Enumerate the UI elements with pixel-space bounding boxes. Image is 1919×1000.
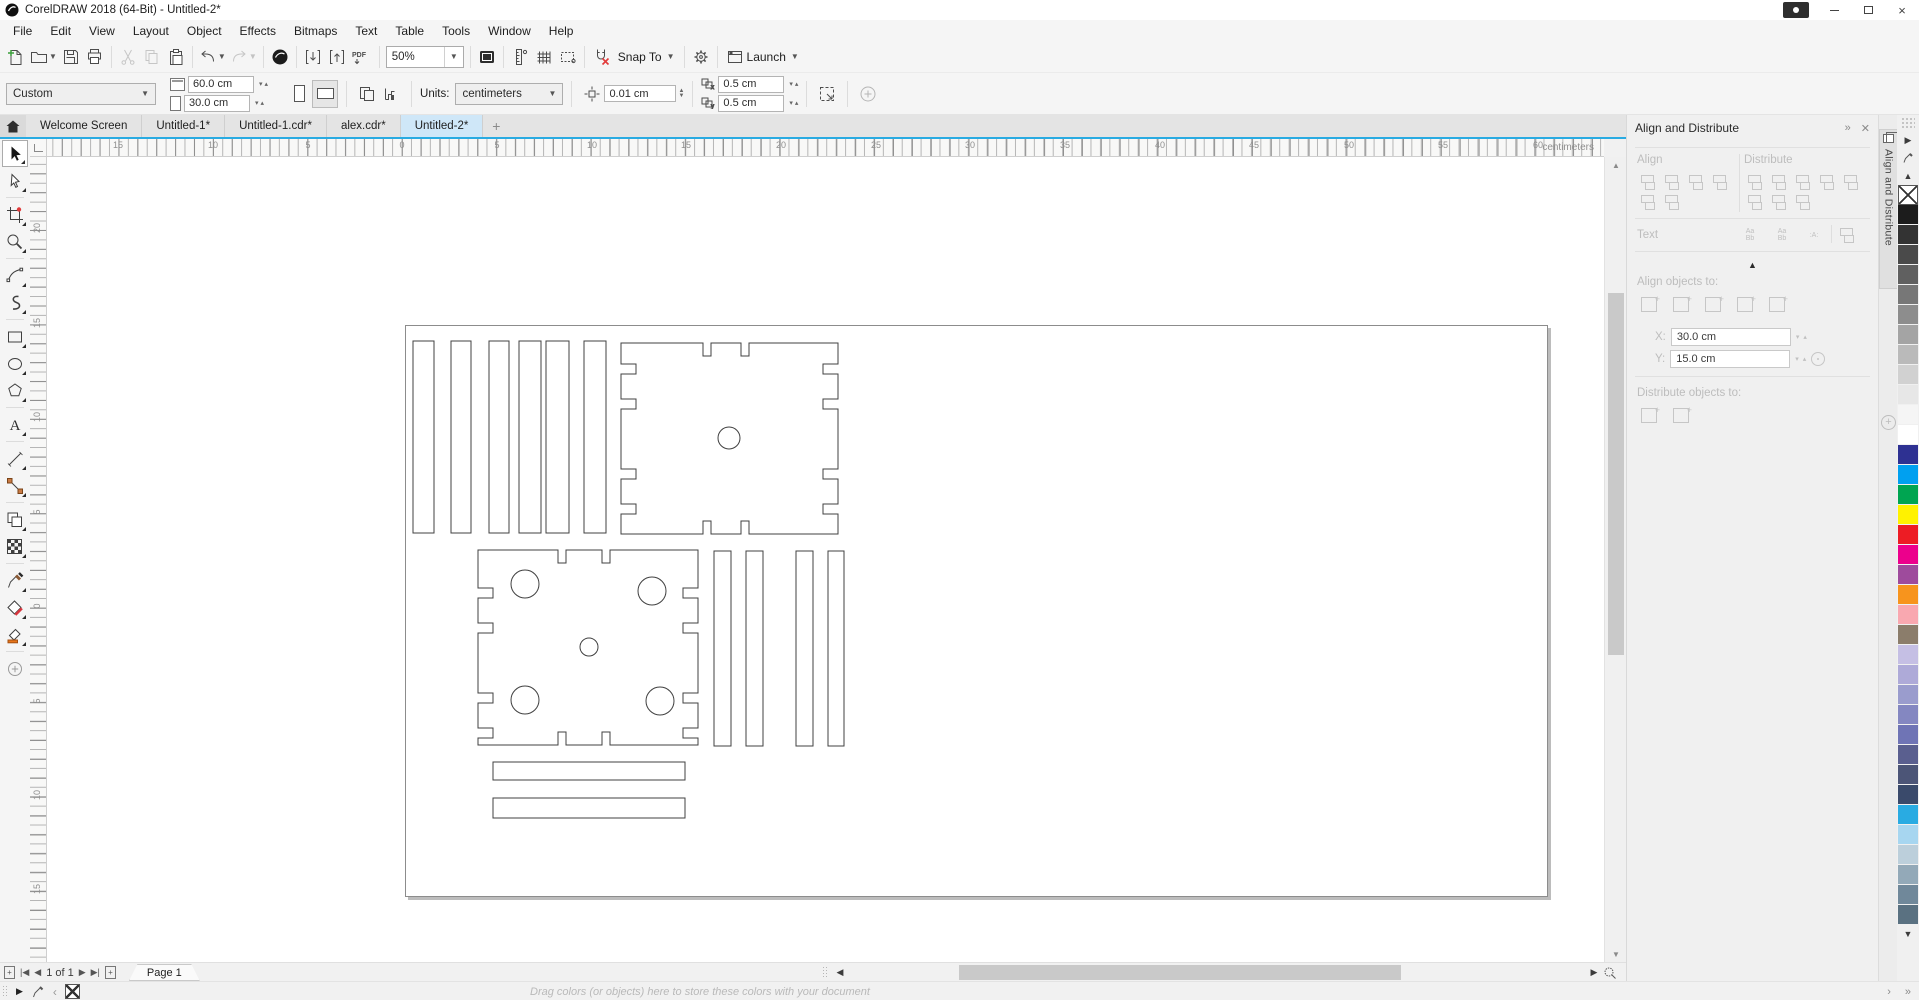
drop-shadow-tool[interactable]	[2, 506, 28, 533]
menu-file[interactable]: File	[4, 22, 41, 40]
property-bar: Custom▼ 60.0 cm ▾▴ 30.0 cm ▾▴ Units: cen…	[0, 73, 1919, 115]
distribute-section-label: Distribute	[1744, 154, 1868, 166]
scroll-up-arrow[interactable]: ▲	[1605, 157, 1627, 173]
align-section-label: Align	[1637, 154, 1735, 166]
menu-effects[interactable]: Effects	[231, 22, 285, 40]
zoom-to-fit-button[interactable]	[1602, 963, 1618, 982]
polygon-tool[interactable]	[2, 377, 28, 404]
launch-dropdown[interactable]: Launch▼	[722, 44, 804, 70]
horizontal-ruler[interactable]: centimeters 1510505101520253035404550556…	[47, 139, 1604, 157]
undo-button[interactable]: ▼	[197, 44, 228, 70]
new-document-button[interactable]	[4, 44, 28, 70]
page-tab-1[interactable]: Page 1	[129, 964, 200, 981]
document-tab-bar: Welcome ScreenUntitled-1*Untitled-1.cdr*…	[0, 115, 1626, 139]
scro​ll-right-arrow[interactable]: ▶	[1586, 963, 1602, 982]
text-section-label: Text	[1637, 229, 1737, 241]
align-outline-icon[interactable]	[1836, 225, 1860, 245]
ruler-number: 5	[32, 694, 42, 708]
color-swatch[interactable]	[1898, 805, 1918, 825]
color-palette: ▶ ▲ ▼	[1897, 115, 1919, 981]
landscape-button[interactable]	[312, 80, 338, 108]
mesh-fill-tool[interactable]	[2, 533, 28, 560]
docker-tab-strip: Align and Distribute +	[1878, 115, 1897, 981]
horizontal-scroll-thumb[interactable]	[959, 965, 1401, 980]
palette-grip[interactable]	[1901, 117, 1915, 129]
color-swatch[interactable]	[1898, 745, 1918, 765]
active-objects-icon[interactable]	[1637, 294, 1663, 316]
color-swatch[interactable]	[1898, 845, 1918, 865]
drawing-shape[interactable]	[796, 551, 813, 746]
ruler-number: 10	[587, 140, 597, 150]
drawing-shape[interactable]	[638, 577, 666, 605]
duplicate-x-field[interactable]: 0.5 cm	[718, 76, 784, 93]
page-width-field[interactable]: 60.0 cm	[188, 76, 254, 93]
ruler-number: 5	[494, 140, 499, 150]
color-swatch[interactable]	[1898, 285, 1918, 305]
menu-view[interactable]: View	[80, 22, 124, 40]
ruler-number: 60	[1533, 140, 1543, 150]
page-preset-combo[interactable]: Custom▼	[6, 83, 156, 105]
nudge-icon	[580, 81, 604, 107]
ruler-number: 10	[208, 140, 218, 150]
extent-of-selection-icon[interactable]	[1637, 405, 1663, 427]
treat-as-filled-button[interactable]	[815, 81, 839, 107]
distribute-buttons	[1744, 172, 1868, 212]
docker-tab-label: Align and Distribute	[1883, 149, 1895, 246]
ruler-origin-button[interactable]	[30, 139, 47, 157]
page-height-spinner[interactable]: ▾▴	[255, 99, 264, 107]
distribute-left-icon[interactable]	[1744, 172, 1768, 192]
align-text-baseline-icon[interactable]: Aa Bb	[1737, 228, 1763, 242]
zoom-tool[interactable]	[2, 228, 28, 255]
quick-customize-button[interactable]: +	[1881, 415, 1896, 430]
ruler-number: 5	[32, 505, 42, 519]
units-combo[interactable]: centimeters▼	[455, 83, 563, 105]
scrollbar-splitter[interactable]	[822, 966, 828, 979]
zoom-level-combo[interactable]: 50%▼	[386, 46, 464, 68]
x-spinner[interactable]: ▾▴	[1796, 333, 1807, 341]
duplicate-y-spinner[interactable]: ▾▴	[789, 99, 798, 107]
show-grid-button[interactable]	[532, 44, 556, 70]
page-edge-icon[interactable]	[1669, 294, 1695, 316]
drawing-shape[interactable]	[451, 341, 471, 533]
horizontal-scrollbar[interactable]	[852, 964, 1586, 981]
duplicate-x-icon: x	[701, 78, 715, 90]
previous-page-button[interactable]: ◀	[34, 967, 41, 978]
ruler-number: 15	[32, 882, 42, 896]
status-bar: ▶ ‹ Drag colors (or objects) here to sto…	[0, 981, 1919, 1000]
drawing-shape[interactable]	[580, 638, 598, 656]
color-swatch[interactable]	[1898, 325, 1918, 345]
drawing-shape[interactable]	[511, 570, 539, 598]
page-width-spinner[interactable]: ▾▴	[259, 80, 268, 88]
show-guidelines-button[interactable]	[556, 44, 580, 70]
align-text-bounding-box-icon[interactable]: :A:	[1801, 232, 1827, 239]
svg-text:PDF: PDF	[352, 52, 367, 59]
last-page-button[interactable]: ▶|	[91, 967, 100, 978]
page-preset-value: Custom	[13, 88, 53, 100]
align-bottom-icon[interactable]	[1661, 192, 1685, 212]
restore-button[interactable]	[1851, 0, 1885, 20]
menu-layout[interactable]: Layout	[124, 22, 178, 40]
drawing-shape[interactable]	[646, 687, 674, 715]
sign-in-avatar[interactable]	[1783, 2, 1809, 18]
artistic-media-tool[interactable]	[2, 289, 28, 316]
distribute-right-icon[interactable]	[1816, 172, 1840, 192]
snap-to-label: Snap To	[618, 50, 662, 64]
svg-text:A: A	[10, 418, 21, 434]
units-label: Units:	[420, 88, 449, 100]
align-center-horizontal-icon[interactable]	[1661, 172, 1685, 192]
align-first-line-baseline-icon[interactable]: Aa Bb	[1769, 228, 1795, 242]
align-distribute-docker: Align and Distribute » ✕ Align Distribut…	[1626, 115, 1878, 981]
page-center-icon[interactable]	[1701, 294, 1727, 316]
palette-scroll-down[interactable]: ▼	[1897, 925, 1919, 943]
y-label: Y:	[1655, 353, 1665, 365]
drawing-shape[interactable]	[718, 427, 740, 449]
align-objects-to-buttons	[1627, 292, 1878, 318]
zoom-level-value: 50%	[392, 51, 415, 63]
ruler-number: 25	[871, 140, 881, 150]
docker-tab-align-distribute[interactable]: Align and Distribute	[1879, 129, 1898, 289]
ellipse-tool[interactable]	[2, 350, 28, 377]
options-button[interactable]	[689, 44, 713, 70]
distribute-top-icon[interactable]	[1840, 172, 1864, 192]
ruler-number: 10	[32, 410, 42, 424]
specified-point-icon[interactable]	[1765, 294, 1791, 316]
specify-point-icon[interactable]	[1811, 352, 1825, 366]
cut-button[interactable]	[116, 44, 140, 70]
units-value: centimeters	[462, 88, 521, 100]
palette-flyout-arrow[interactable]: ▶	[1897, 131, 1919, 149]
svg-text:y: y	[711, 104, 714, 109]
document-tabs: Welcome ScreenUntitled-1*Untitled-1.cdr*…	[26, 115, 483, 137]
window-title: CorelDRAW 2018 (64-Bit) - Untitled-2*	[25, 4, 221, 16]
color-swatch[interactable]	[1898, 785, 1918, 805]
palette-eyedropper-icon[interactable]	[1897, 149, 1919, 167]
drawing-shape[interactable]	[519, 341, 541, 533]
ruler-number: 20	[776, 140, 786, 150]
ruler-number: 5	[305, 140, 310, 150]
distribute-center-vertical-icon[interactable]	[1744, 192, 1768, 212]
standard-toolbar: ▼ ▼ ▼ PDF 50%▼ Snap To▼ Launch▼	[0, 41, 1919, 73]
interactive-fill-tool[interactable]	[2, 621, 28, 648]
ruler-number: 15	[681, 140, 691, 150]
color-swatch[interactable]	[1898, 365, 1918, 385]
ruler-number: 30	[965, 140, 975, 150]
color-swatch[interactable]	[1898, 605, 1918, 625]
menu-edit[interactable]: Edit	[41, 22, 80, 40]
text-tool[interactable]: A	[2, 411, 28, 438]
print-button[interactable]	[83, 44, 107, 70]
add-page-after-button[interactable]: +	[105, 966, 116, 979]
menu-window[interactable]: Window	[479, 22, 540, 40]
align-top-icon[interactable]	[1709, 172, 1733, 192]
minimize-button[interactable]	[1817, 0, 1851, 20]
docker-title: Align and Distribute	[1635, 121, 1739, 135]
x-label: X:	[1655, 331, 1666, 343]
color-swatch[interactable]	[1898, 265, 1918, 285]
duplicate-distance-group: x 0.5 cm ▾▴ y 0.5 cm ▾▴	[701, 76, 798, 112]
ruler-number: 50	[1344, 140, 1354, 150]
color-swatch[interactable]	[1898, 725, 1918, 745]
redo-button[interactable]: ▼	[228, 44, 259, 70]
menu-table[interactable]: Table	[386, 22, 433, 40]
smart-fill-tool[interactable]	[2, 594, 28, 621]
color-swatch[interactable]	[1898, 545, 1918, 565]
color-swatch[interactable]	[1898, 345, 1918, 365]
fullscreen-preview-button[interactable]	[475, 44, 499, 70]
pick-tool[interactable]	[2, 140, 28, 167]
x-coordinate-field[interactable]: 30.0 cm	[1671, 328, 1791, 346]
color-swatch[interactable]	[1898, 465, 1918, 485]
align-right-icon[interactable]	[1685, 172, 1709, 192]
ruler-number: 40	[1155, 140, 1165, 150]
ruler-number: 45	[1249, 140, 1259, 150]
color-swatch[interactable]	[1898, 765, 1918, 785]
ruler-number: 20	[32, 221, 42, 235]
align-center-vertical-icon[interactable]	[1637, 192, 1661, 212]
color-swatch[interactable]	[1898, 905, 1918, 925]
menu-text[interactable]: Text	[346, 22, 386, 40]
docker-expand-button[interactable]: »	[1845, 122, 1851, 135]
duplicate-y-field[interactable]: 0.5 cm	[718, 95, 784, 112]
docker-close-button[interactable]: ✕	[1861, 122, 1870, 135]
statusbar-more-arrow[interactable]: »	[1905, 986, 1911, 998]
toolbox: A	[0, 139, 30, 962]
ruler-number: 15	[113, 140, 123, 150]
color-swatch[interactable]	[1898, 865, 1918, 885]
doc-tab-alex-cdr-[interactable]: alex.cdr*	[327, 115, 401, 137]
color-swatch[interactable]	[1898, 245, 1918, 265]
drawing-canvas[interactable]	[47, 157, 1604, 962]
drawing-shape[interactable]	[489, 341, 509, 533]
page-width-icon	[170, 78, 185, 91]
doc-tab-untitled-1-[interactable]: Untitled-1*	[142, 115, 225, 137]
statusbar-expand-arrow[interactable]: ›	[1887, 986, 1891, 998]
distribute-objects-to-label: Distribute objects to:	[1627, 383, 1878, 403]
current-page-button[interactable]	[379, 81, 403, 107]
publish-pdf-button[interactable]: PDF	[349, 44, 375, 70]
no-color-swatch[interactable]	[1898, 185, 1918, 205]
color-swatch[interactable]	[1898, 485, 1918, 505]
doc-tab-untitled-2-[interactable]: Untitled-2*	[401, 115, 484, 137]
color-swatch[interactable]	[1898, 565, 1918, 585]
menu-tools[interactable]: Tools	[433, 22, 479, 40]
open-button[interactable]: ▼	[28, 44, 59, 70]
distribute-bottom-icon[interactable]	[1792, 192, 1816, 212]
color-swatch[interactable]	[1898, 205, 1918, 225]
color-swatch[interactable]	[1898, 685, 1918, 705]
align-buttons	[1637, 172, 1733, 212]
menu-bitmaps[interactable]: Bitmaps	[285, 22, 346, 40]
menu-object[interactable]: Object	[178, 22, 231, 40]
export-button[interactable]	[325, 44, 349, 70]
new-document-tab-button[interactable]: +	[483, 115, 509, 137]
undo-dropdown-caret[interactable]: ▼	[218, 52, 226, 61]
rectangle-tool[interactable]	[2, 323, 28, 350]
ruler-number: 0	[32, 599, 42, 613]
duplicate-y-icon: y	[701, 97, 715, 109]
statusbar-hint: Drag colors (or objects) here to store t…	[0, 982, 1400, 1000]
drawing-svg	[406, 326, 1549, 898]
color-swatch[interactable]	[1898, 825, 1918, 845]
color-swatch[interactable]	[1898, 885, 1918, 905]
color-swatch[interactable]	[1898, 525, 1918, 545]
svg-text:x: x	[711, 85, 714, 90]
color-swatch[interactable]	[1898, 305, 1918, 325]
shape-tool[interactable]	[2, 167, 28, 194]
page-height-field[interactable]: 30.0 cm	[184, 95, 250, 112]
nudge-field[interactable]: 0.01 cm	[604, 85, 676, 102]
show-rulers-button[interactable]	[508, 44, 532, 70]
color-swatch[interactable]	[1898, 385, 1918, 405]
color-swatch[interactable]	[1898, 445, 1918, 465]
search-content-button[interactable]	[268, 44, 292, 70]
more-tools-button[interactable]	[2, 655, 28, 682]
coreldraw-logo-icon	[5, 3, 19, 17]
welcome-home-button[interactable]	[0, 115, 26, 137]
drawing-shape[interactable]	[546, 341, 569, 533]
color-swatch[interactable]	[1898, 585, 1918, 605]
ruler-number: 35	[1060, 140, 1070, 150]
extent-of-page-icon[interactable]	[1669, 405, 1695, 427]
all-pages-button[interactable]	[355, 81, 379, 107]
ruler-unit-label: centimeters	[1542, 142, 1594, 153]
page-height-icon	[170, 96, 181, 111]
save-button[interactable]	[59, 44, 83, 70]
color-swatch[interactable]	[1898, 705, 1918, 725]
open-dropdown-caret[interactable]: ▼	[49, 52, 57, 61]
color-swatch[interactable]	[1898, 225, 1918, 245]
portrait-button[interactable]	[286, 80, 312, 108]
coreldraw-window: CorelDRAW 2018 (64-Bit) - Untitled-2* × …	[0, 0, 1919, 1000]
vertical-scroll-thumb[interactable]	[1608, 293, 1624, 655]
doc-tab-welcome-screen[interactable]: Welcome Screen	[26, 115, 142, 137]
vertical-scrollbar[interactable]: ▲ ▼	[1604, 157, 1626, 962]
drawing-shape[interactable]	[413, 341, 434, 533]
first-page-button[interactable]: |◀	[20, 967, 29, 978]
duplicate-x-spinner[interactable]: ▾▴	[789, 80, 798, 88]
launch-label: Launch	[747, 50, 786, 64]
title-bar: CorelDRAW 2018 (64-Bit) - Untitled-2* ×	[0, 0, 1919, 20]
ruler-number: 55	[1438, 140, 1448, 150]
add-properties-button[interactable]	[856, 81, 880, 107]
palette-colors	[1897, 205, 1919, 925]
scroll-left-arrow[interactable]: ◀	[832, 963, 848, 982]
ruler-number: 15	[32, 316, 42, 330]
color-swatch[interactable]	[1898, 645, 1918, 665]
drawing-shape[interactable]	[584, 341, 606, 533]
crop-tool[interactable]	[2, 201, 28, 228]
text-align-buttons: Aa BbAa Bb:A:	[1737, 228, 1827, 242]
drawing-shape[interactable]	[746, 551, 763, 746]
distribute-spacing-vertical-icon[interactable]	[1768, 192, 1792, 212]
palette-scroll-up[interactable]: ▲	[1897, 167, 1919, 185]
doc-tab-untitled-1-cdr-[interactable]: Untitled-1.cdr*	[225, 115, 327, 137]
scroll-down-arrow[interactable]: ▼	[1605, 946, 1627, 962]
distribute-spacing-horizontal-icon[interactable]	[1792, 172, 1816, 192]
nudge-spinner[interactable]: ▲▼	[678, 89, 684, 99]
page-bar: + |◀ ◀ 1 of 1 ▶ ▶| + Page 1 ◀ ▶	[0, 962, 1626, 981]
color-swatch[interactable]	[1898, 505, 1918, 525]
docker-collapse-arrow[interactable]: ▲	[1627, 258, 1878, 272]
grid-icon[interactable]	[1733, 294, 1759, 316]
add-page-before-button[interactable]: +	[4, 966, 15, 979]
color-swatch[interactable]	[1898, 425, 1918, 445]
drawing-shape[interactable]	[493, 762, 685, 780]
straight-line-tool[interactable]	[2, 445, 28, 472]
align-objects-to-label: Align objects to:	[1627, 272, 1878, 292]
menu-help[interactable]: Help	[540, 22, 583, 40]
color-eyedropper-tool[interactable]	[2, 567, 28, 594]
copy-button[interactable]	[140, 44, 164, 70]
drawing-shape[interactable]	[493, 798, 685, 818]
connector-tool[interactable]	[2, 472, 28, 499]
drawing-shape[interactable]	[828, 551, 844, 746]
distribute-objects-to-buttons	[1627, 403, 1878, 429]
y-spinner[interactable]: ▾▴	[1795, 355, 1806, 363]
snap-off-button[interactable]	[589, 44, 613, 70]
next-page-button[interactable]: ▶	[79, 967, 86, 978]
align-left-icon[interactable]	[1637, 172, 1661, 192]
ruler-number: 10	[32, 788, 42, 802]
snap-to-dropdown[interactable]: Snap To▼	[613, 44, 680, 70]
y-coordinate-field[interactable]: 15.0 cm	[1670, 350, 1790, 368]
vertical-ruler[interactable]: 2015105051015	[30, 157, 47, 962]
docker-icon	[1883, 134, 1894, 143]
document-page[interactable]	[405, 325, 1548, 897]
color-swatch[interactable]	[1898, 405, 1918, 425]
color-swatch[interactable]	[1898, 665, 1918, 685]
close-button[interactable]: ×	[1885, 0, 1919, 20]
freehand-tool[interactable]	[2, 262, 28, 289]
drawing-shape[interactable]	[511, 686, 539, 714]
page-info: 1 of 1	[46, 967, 74, 979]
paste-button[interactable]	[164, 44, 188, 70]
distribute-center-horizontal-icon[interactable]	[1768, 172, 1792, 192]
ruler-number: 0	[399, 140, 404, 150]
menu-bar: FileEditViewLayoutObjectEffectsBitmapsTe…	[0, 20, 1919, 41]
page-size-group: 60.0 cm ▾▴ 30.0 cm ▾▴	[170, 76, 268, 112]
drawing-shape[interactable]	[714, 551, 731, 746]
import-button[interactable]	[301, 44, 325, 70]
color-swatch[interactable]	[1898, 625, 1918, 645]
